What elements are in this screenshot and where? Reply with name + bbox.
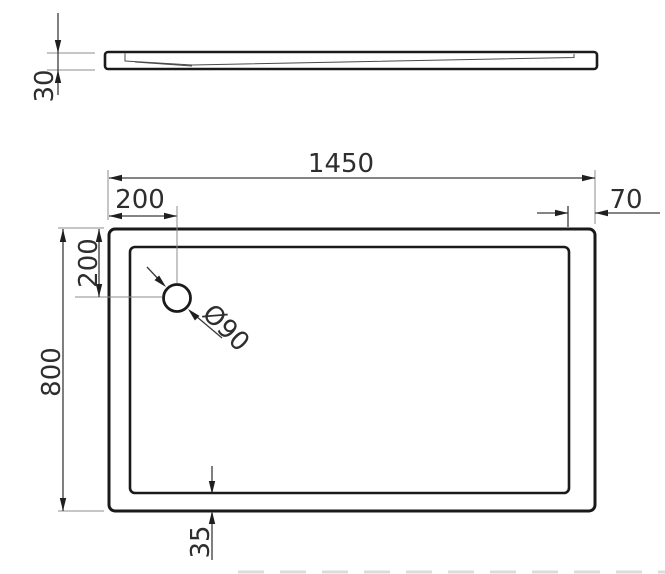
dimension-label-side-thickness: 30 <box>30 69 60 102</box>
arrowhead-left-icon <box>109 175 122 181</box>
dimension-label-overall-width: 1450 <box>308 149 374 179</box>
dimension-label-bottom-rim: 35 <box>186 525 216 558</box>
shower-tray-drawing: 30 1450 200 70 200 <box>0 0 665 574</box>
arrowhead-down-icon <box>60 498 66 511</box>
arrowhead-right-icon <box>555 210 568 216</box>
arrowhead-left-icon <box>595 210 608 216</box>
dimension-overall-width: 1450 <box>108 149 595 224</box>
side-view <box>105 52 597 69</box>
dimension-label-drain-offset-x: 200 <box>115 185 165 215</box>
drain-hole <box>164 285 191 312</box>
dimension-side-thickness: 30 <box>30 13 95 103</box>
dimension-label-drain-offset-y: 200 <box>74 238 104 288</box>
arrowhead-up-icon <box>209 511 215 524</box>
dimension-label-overall-depth: 800 <box>37 347 67 397</box>
dimension-label-right-rim: 70 <box>609 185 642 215</box>
plan-view-inner-edge <box>130 247 569 493</box>
arrowhead-right-icon <box>582 175 595 181</box>
arrowhead-down-icon <box>55 40 61 53</box>
dimension-right-rim: 70 <box>537 185 660 227</box>
side-view-profile-outline <box>105 52 597 69</box>
arrowhead-right-icon <box>164 213 177 219</box>
plan-view <box>109 229 595 511</box>
drawing-canvas: 30 1450 200 70 200 <box>0 0 665 574</box>
arrowhead-up-icon <box>60 229 66 242</box>
